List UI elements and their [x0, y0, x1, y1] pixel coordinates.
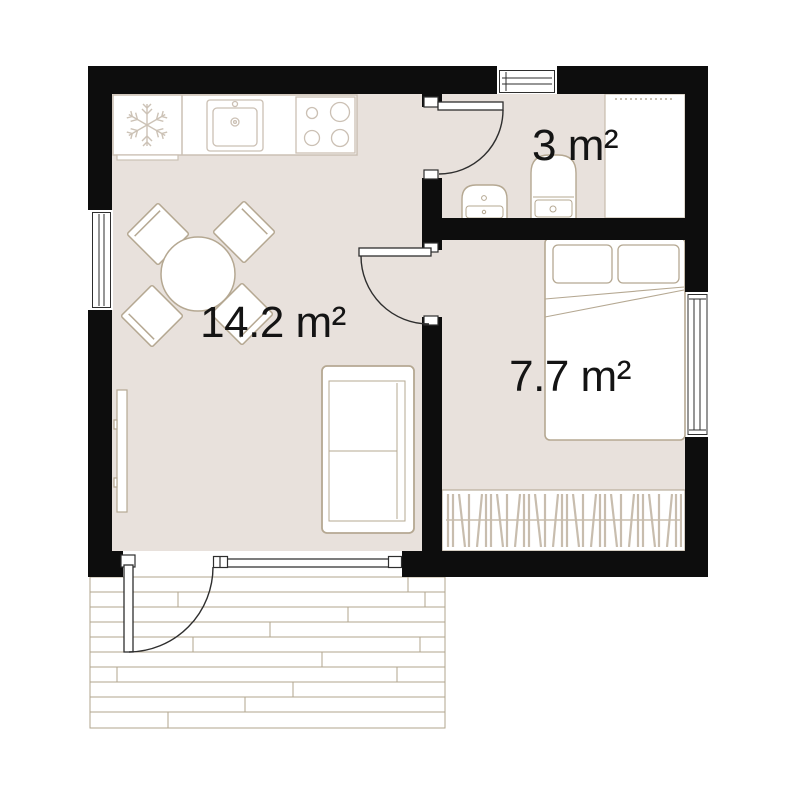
- window-living-bottom: [213, 553, 402, 570]
- floor-plan-drawing: [0, 0, 800, 800]
- door-leaf: [124, 565, 133, 652]
- bathroom-area-label: 3 m²: [532, 121, 618, 171]
- bedroom-area-label: 7.7 m²: [509, 352, 631, 402]
- kitchen-sink: [207, 100, 263, 151]
- pillow: [618, 245, 679, 283]
- window-bedroom-right: [686, 292, 709, 437]
- floor-plan: 14.2 m² 3 m² 7.7 m²: [0, 0, 800, 800]
- double-bed: [545, 238, 685, 440]
- washbasin: [462, 185, 507, 221]
- pillow: [553, 245, 612, 283]
- window-bathroom-top: [497, 68, 557, 94]
- window-left-living: [90, 210, 113, 310]
- sofa: [322, 366, 414, 533]
- living-room-area-label: 14.2 m²: [200, 298, 346, 348]
- wardrobe-clothes-rail: [442, 490, 685, 551]
- door-leaf: [438, 102, 503, 110]
- deck-terrace: [90, 577, 445, 728]
- stove-burners: [296, 97, 355, 153]
- door-leaf: [359, 248, 431, 256]
